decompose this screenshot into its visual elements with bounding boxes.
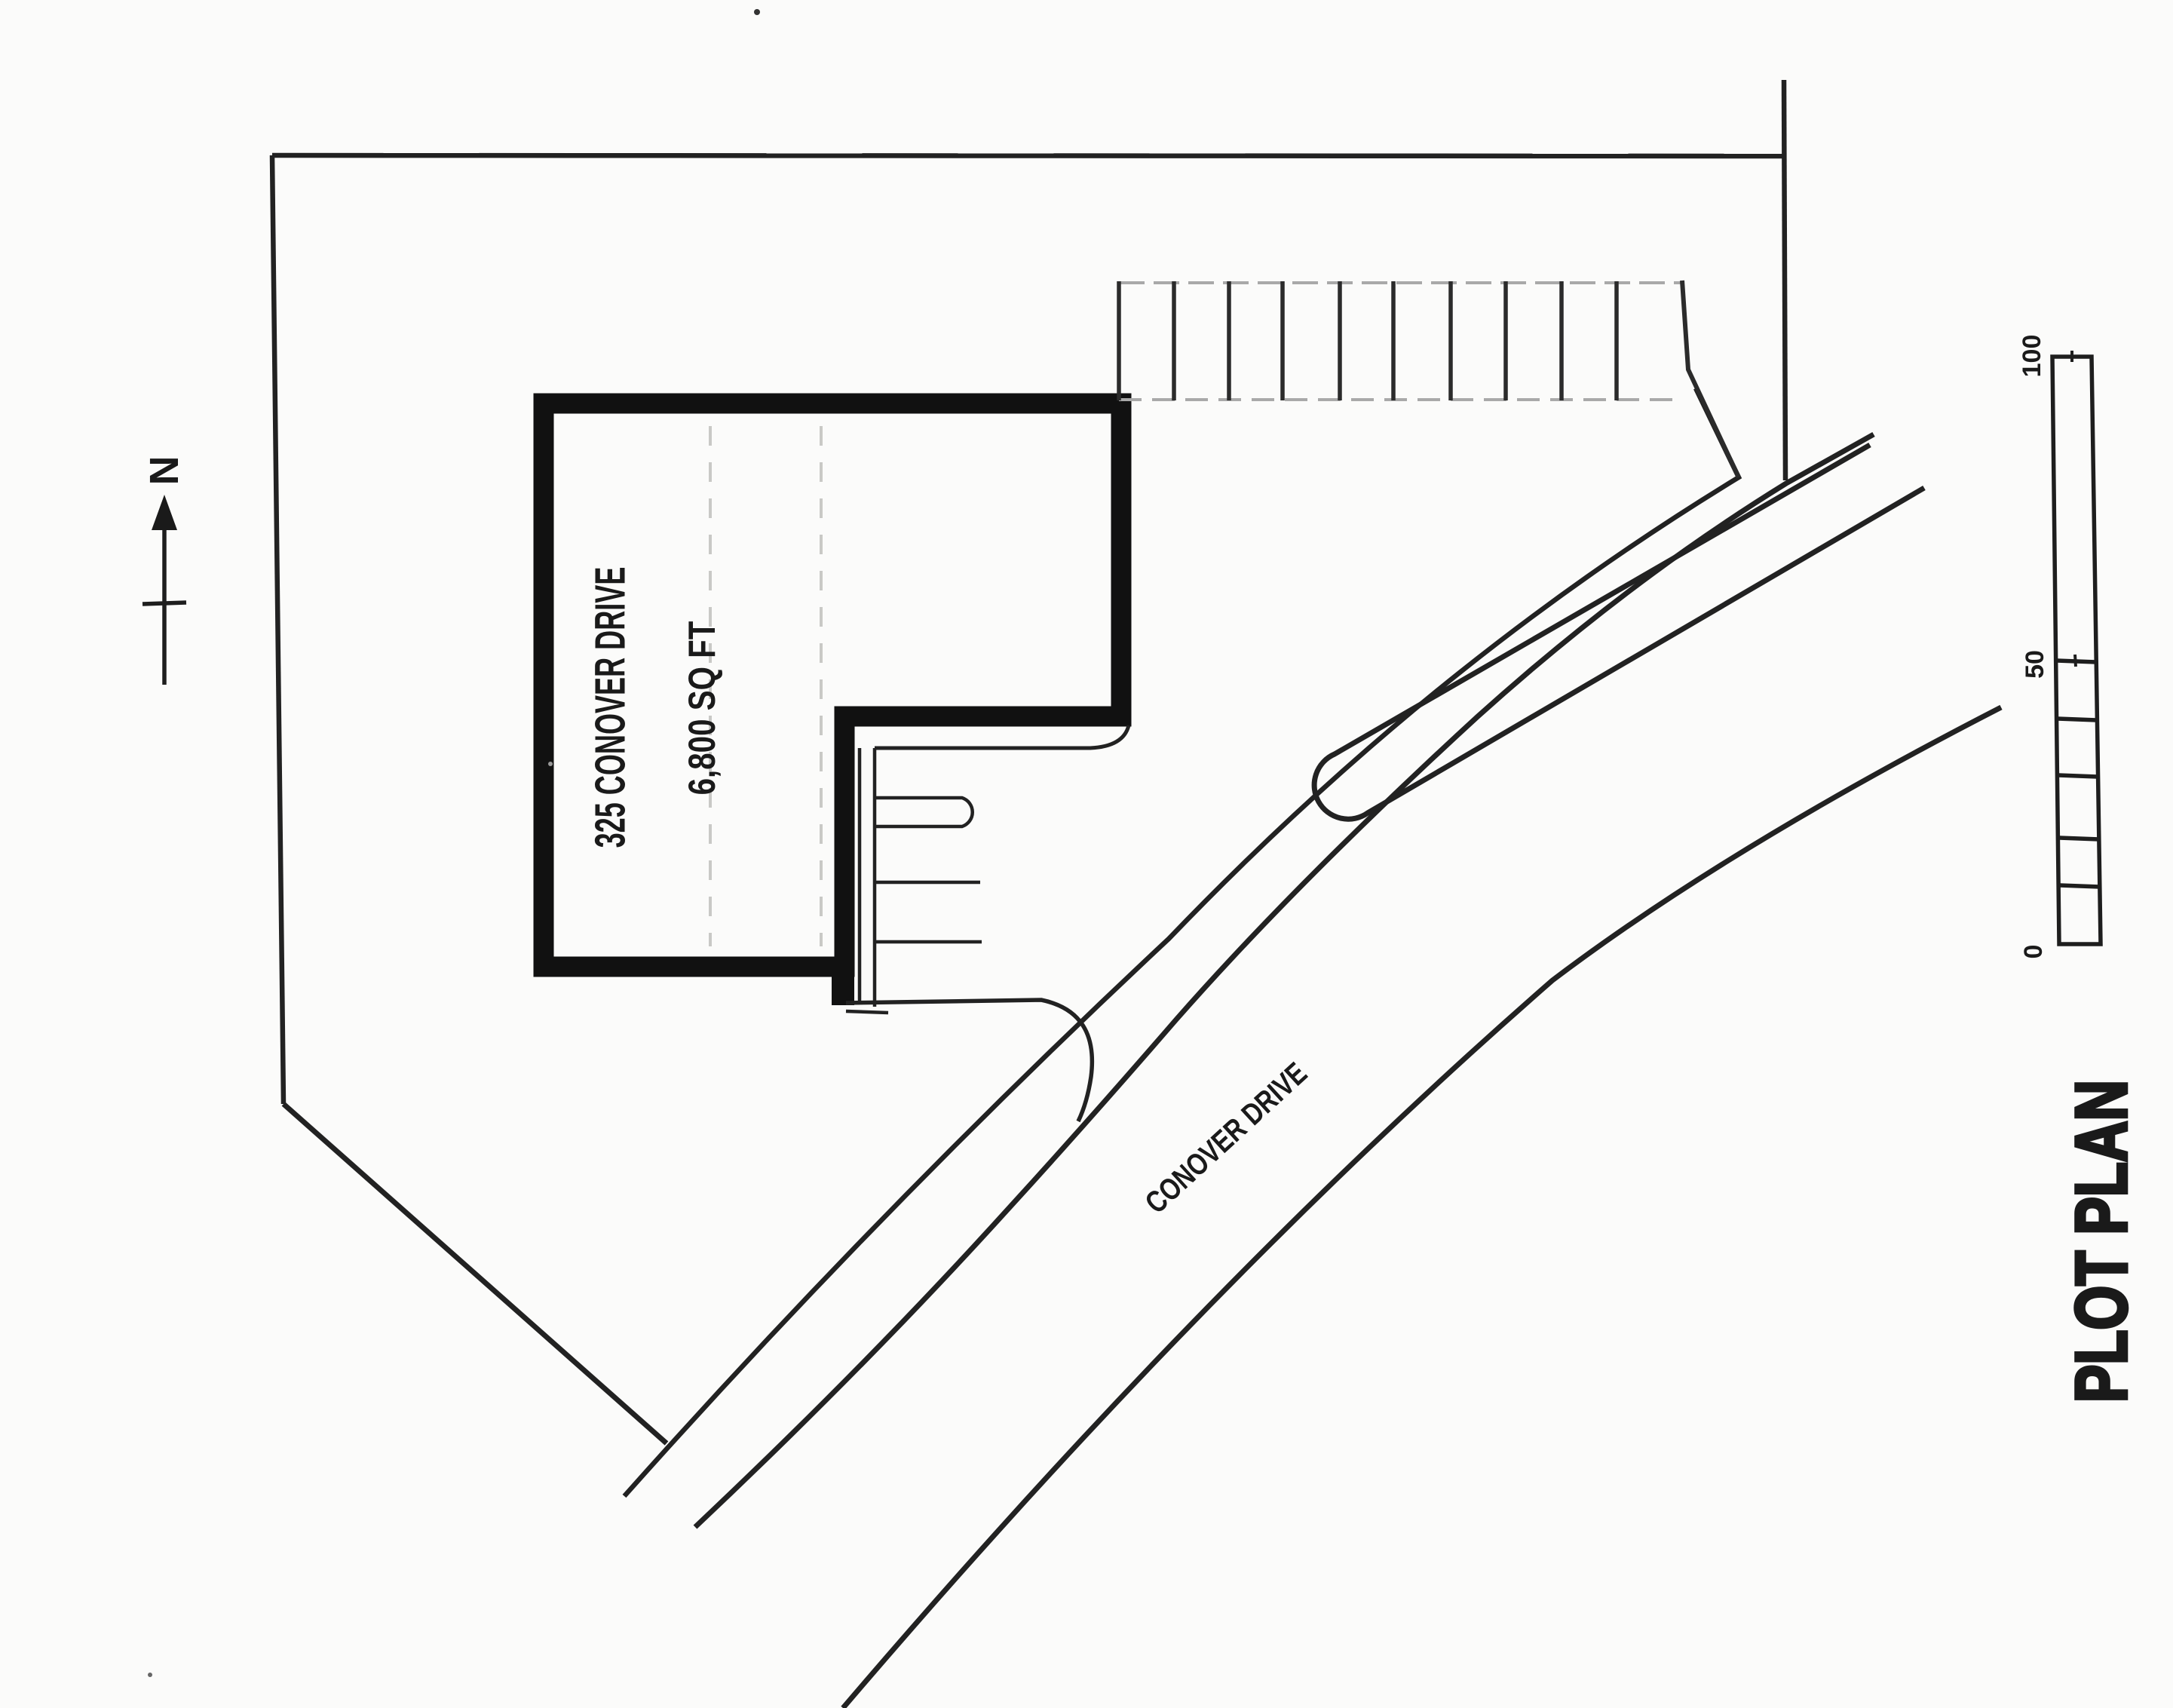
svg-text:0: 0 — [2019, 945, 2048, 959]
svg-text:100: 100 — [2018, 335, 2046, 378]
svg-text:PLOT PLAN: PLOT PLAN — [2061, 1080, 2142, 1403]
svg-text:6,800 SQ FT: 6,800 SQ FT — [681, 621, 723, 796]
svg-text:325 CONOVER DRIVE: 325 CONOVER DRIVE — [587, 567, 634, 848]
svg-text:N: N — [142, 456, 187, 486]
svg-text:50: 50 — [2021, 650, 2049, 679]
